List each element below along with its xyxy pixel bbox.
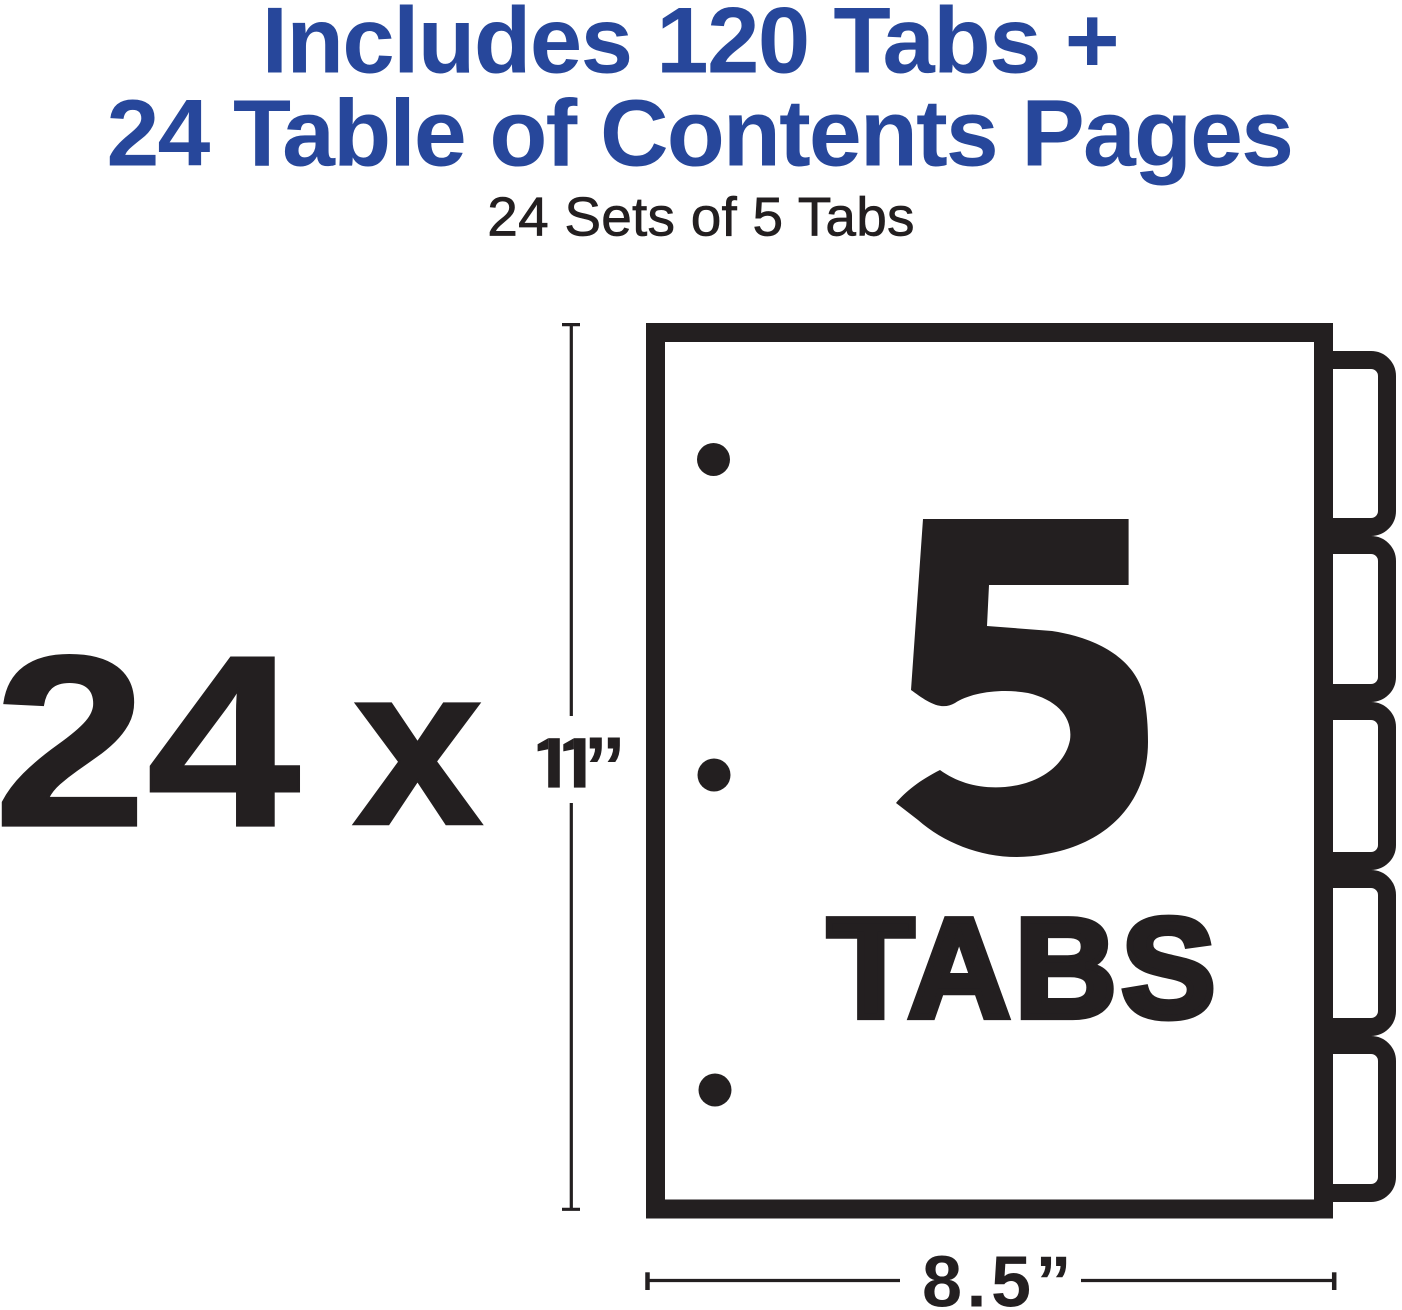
svg-text:24 Sets of 5 Tabs: 24 Sets of 5 Tabs — [487, 186, 914, 248]
svg-text:Includes 120 Tabs +: Includes 120 Tabs + — [262, 0, 1118, 92]
svg-text:24: 24 — [0, 605, 302, 878]
svg-text:x: x — [353, 618, 484, 873]
svg-text:”: ” — [583, 720, 626, 816]
svg-text:8.5”: 8.5” — [922, 1243, 1076, 1310]
svg-text:24 Table of Contents Pages: 24 Table of Contents Pages — [106, 80, 1292, 186]
svg-text:TABS: TABS — [828, 889, 1221, 1047]
